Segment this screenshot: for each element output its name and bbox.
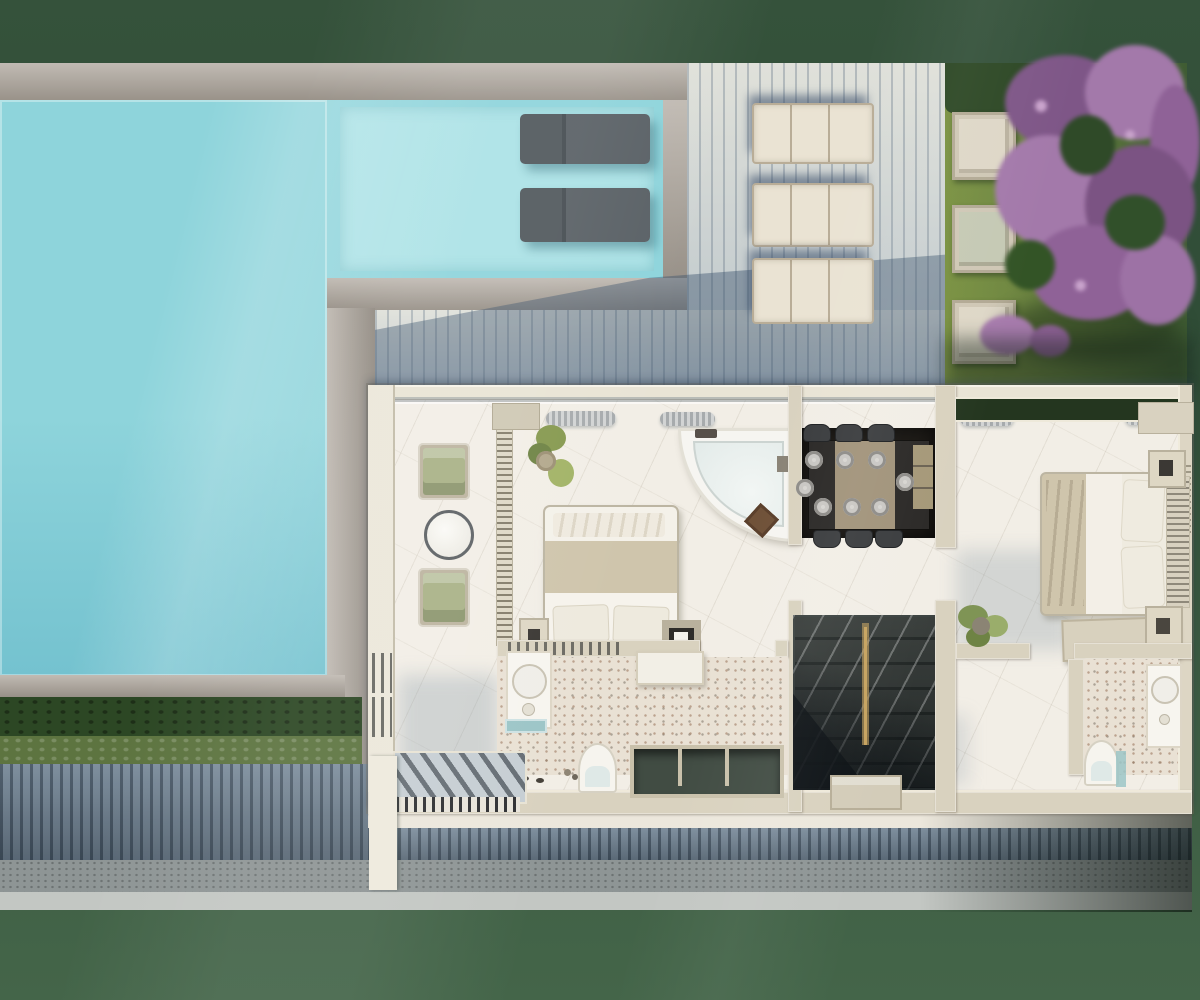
hedge-light-row bbox=[0, 736, 362, 764]
curtain bbox=[546, 411, 616, 426]
dining-side-mats bbox=[913, 445, 933, 509]
tree-foliage-gap bbox=[1060, 115, 1115, 175]
interior-wall bbox=[935, 385, 956, 548]
floor-items bbox=[536, 778, 544, 783]
bed-pillow bbox=[552, 604, 609, 644]
dining-chair bbox=[804, 425, 830, 441]
bath-vanity bbox=[506, 651, 552, 729]
dining-chair bbox=[836, 425, 862, 441]
sink-drain bbox=[522, 703, 535, 716]
duvet-folds bbox=[1046, 480, 1084, 606]
bed-one bbox=[543, 505, 679, 652]
left-wall-louvers bbox=[372, 653, 392, 693]
pool-coping-right bbox=[663, 100, 687, 280]
nightstand bbox=[1145, 606, 1183, 648]
interior-wall bbox=[935, 600, 956, 812]
toiletry-bottles bbox=[572, 774, 578, 780]
swimming-pool bbox=[0, 100, 327, 676]
left-wall-louvers bbox=[372, 697, 392, 737]
armchair-cushion bbox=[423, 573, 465, 622]
interior-wall bbox=[788, 385, 802, 545]
potted-plant bbox=[528, 425, 574, 491]
terrace-armchair bbox=[418, 443, 470, 500]
decor-item bbox=[1156, 618, 1170, 634]
toiletry-bottles bbox=[564, 769, 571, 776]
trough-divider bbox=[725, 749, 729, 786]
armchair-cushion bbox=[423, 448, 465, 495]
shower-tray bbox=[505, 719, 547, 733]
place-setting bbox=[814, 498, 832, 516]
entrance-grate bbox=[396, 797, 520, 812]
master-bed bbox=[1040, 472, 1170, 616]
deck-lounger bbox=[752, 183, 874, 247]
tree-highlight bbox=[1125, 130, 1135, 140]
in-pool-lounger bbox=[520, 114, 650, 164]
glass-partition-louvered bbox=[497, 420, 512, 645]
toilet bbox=[1084, 740, 1119, 786]
storage-trough bbox=[630, 745, 784, 798]
roof-beam bbox=[1138, 402, 1194, 434]
upper-floor-plan bbox=[368, 385, 1192, 812]
bottom-right-darkening bbox=[920, 806, 1192, 912]
place-setting bbox=[843, 498, 861, 516]
grass-building-shadow bbox=[945, 338, 1192, 388]
slatted-headboard bbox=[1166, 476, 1190, 608]
interior-wall-horizontal bbox=[1074, 643, 1192, 659]
corner-bathtub bbox=[678, 428, 797, 542]
place-setting bbox=[896, 473, 914, 491]
place-setting bbox=[836, 451, 854, 469]
bed-pillow bbox=[1120, 545, 1165, 609]
dining-chair bbox=[868, 425, 894, 441]
shower-glass bbox=[1116, 751, 1126, 787]
interior-wall-horizontal bbox=[775, 640, 788, 657]
dining-chair bbox=[846, 531, 872, 547]
plank-fence-left bbox=[0, 764, 368, 860]
stair-handrail bbox=[864, 627, 867, 745]
deck-lounger bbox=[752, 103, 874, 164]
dining-chair bbox=[814, 531, 840, 547]
potted-plant bbox=[956, 603, 1010, 653]
toilet bbox=[578, 743, 617, 793]
place-setting bbox=[805, 451, 823, 469]
curtain bbox=[660, 412, 715, 426]
sink-basin bbox=[1151, 676, 1179, 704]
terrace-round-table bbox=[424, 510, 474, 560]
tree-highlight bbox=[1075, 280, 1086, 291]
in-pool-lounger bbox=[520, 188, 650, 242]
exterior-pillar bbox=[369, 756, 397, 890]
villa-aerial-floorplan-render bbox=[0, 0, 1200, 1000]
pool-coping-bottom bbox=[0, 675, 345, 697]
sink-basin bbox=[512, 664, 547, 699]
terrace-armchair bbox=[418, 568, 470, 627]
nightstand bbox=[1148, 450, 1186, 488]
stair-landing-step bbox=[830, 775, 902, 810]
wall-shelf bbox=[636, 651, 704, 685]
bed-pillow bbox=[1120, 479, 1165, 543]
decor-item bbox=[1159, 460, 1173, 476]
bed-sheet-fold bbox=[553, 513, 665, 537]
interior-wall-vertical bbox=[1068, 659, 1084, 775]
tree-highlight bbox=[1035, 100, 1047, 112]
staircase bbox=[793, 615, 940, 790]
deck-lounger bbox=[752, 258, 874, 324]
toilet-bowl bbox=[585, 766, 610, 788]
master-vanity bbox=[1146, 664, 1182, 748]
flowering-tree bbox=[975, 40, 1200, 362]
glass-wall-top bbox=[395, 397, 955, 402]
trough-divider bbox=[678, 749, 682, 786]
hedge-dark-row bbox=[0, 697, 362, 736]
exterior-wall-left bbox=[368, 385, 395, 812]
tree-foliage-gap bbox=[1105, 195, 1165, 250]
sink-drain bbox=[1159, 714, 1170, 725]
bathtub-faucet bbox=[695, 429, 717, 438]
toilet-bowl bbox=[1091, 761, 1113, 781]
dining-chair bbox=[876, 531, 902, 547]
tree-foliage-gap bbox=[1005, 240, 1055, 290]
plant-pot bbox=[972, 617, 990, 635]
place-setting bbox=[871, 498, 889, 516]
plant-pot bbox=[536, 451, 556, 471]
place-setting bbox=[868, 451, 886, 469]
place-setting bbox=[796, 479, 814, 497]
